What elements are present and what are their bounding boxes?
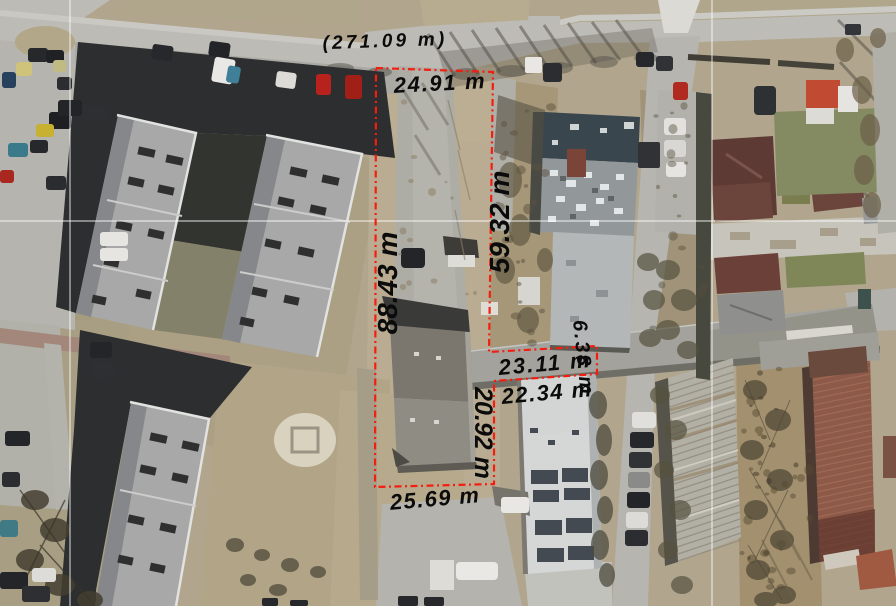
svg-text:59.32 m: 59.32 m <box>484 171 515 274</box>
svg-text:24.91 m: 24.91 m <box>392 68 487 98</box>
svg-text:20.92 m: 20.92 m <box>469 386 497 479</box>
svg-text:(271.09 m): (271.09 m) <box>322 29 448 54</box>
svg-text:88.43 m: 88.43 m <box>372 232 403 335</box>
